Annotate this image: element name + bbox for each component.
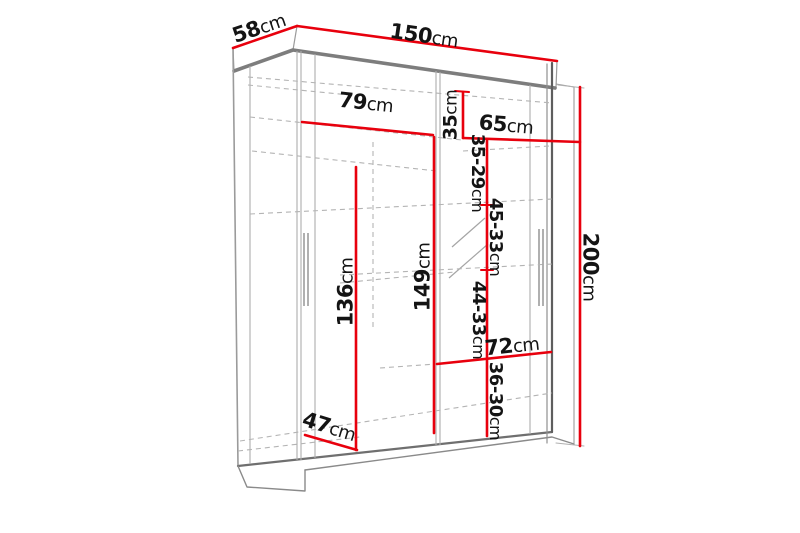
wardrobe-drawing bbox=[0, 0, 800, 533]
left-door-handle bbox=[304, 233, 308, 306]
dimension-lines bbox=[233, 26, 580, 450]
dim-label-136cm: 136cm bbox=[336, 258, 357, 327]
right-door-handle bbox=[539, 229, 543, 306]
dim-label-36-30cm: 36-30cm bbox=[486, 362, 504, 440]
dim-label-200cm: 200cm bbox=[580, 233, 601, 302]
dim-line-79cm bbox=[302, 122, 433, 135]
dim-label-45-33cm: 45-33cm bbox=[486, 198, 504, 276]
dim-label-35-29cm: 35-29cm bbox=[468, 134, 486, 212]
wardrobe-outline bbox=[233, 26, 584, 491]
dim-label-79cm: 79cm bbox=[338, 90, 395, 117]
dim-label-149cm: 149cm bbox=[413, 243, 434, 312]
dim-label-35cm: 35cm bbox=[442, 90, 461, 140]
dim-label-72cm: 72cm bbox=[484, 333, 541, 360]
wardrobe-dimension-diagram: 58cm 150cm 79cm 35cm 65cm 35-29cm 45-33c… bbox=[0, 0, 800, 533]
